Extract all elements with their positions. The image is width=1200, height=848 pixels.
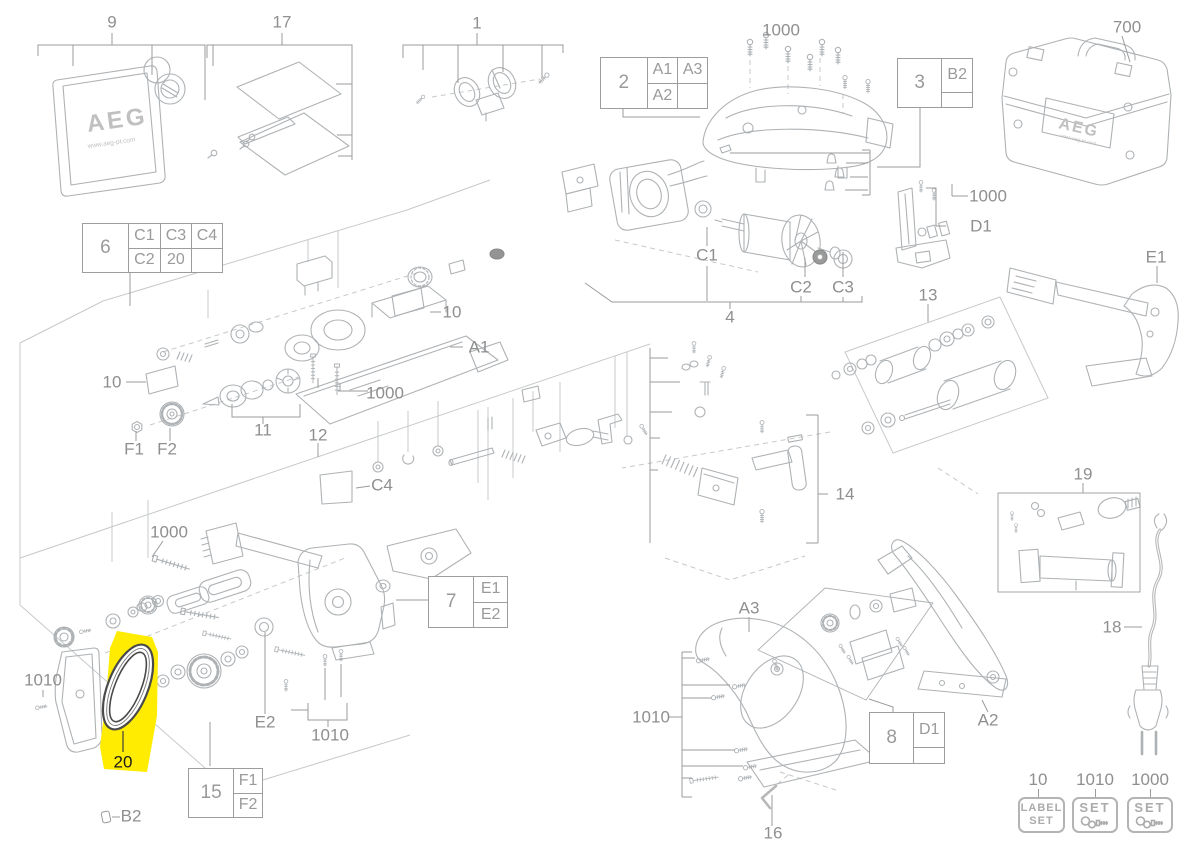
switch-plate-d1-group (896, 181, 950, 268)
part-label-1000-d1[interactable]: 1000 (969, 188, 1007, 205)
part-label-f1[interactable]: F1 (124, 441, 144, 458)
ref-cell-A3: A3 (677, 58, 707, 83)
spindle-group (203, 369, 300, 407)
badge-tick (1095, 789, 1096, 797)
belt-cover-7-group (298, 544, 395, 660)
ref-cell-A1: A1 (648, 58, 678, 83)
switch-parts-group (415, 63, 550, 121)
ref-cell-C3: C3 (160, 224, 191, 248)
hex-key-16 (762, 786, 776, 808)
badge-1000[interactable]: SET (1127, 797, 1173, 833)
highlighted-belt-20[interactable] (93, 631, 164, 772)
part-label-19[interactable]: 19 (1074, 466, 1093, 483)
ref-table-3[interactable]: 3B2 (897, 58, 973, 108)
part-label-b2-bottom[interactable]: B2 (121, 808, 142, 825)
exploded-parts-diagram: AEG www.aeg-pt.com (0, 0, 1200, 848)
ref-cell-C4: C4 (191, 224, 222, 248)
part-label-1000-top[interactable]: 1000 (762, 22, 800, 39)
part-label-c1[interactable]: C1 (696, 247, 718, 264)
ref-cell-B2: B2 (942, 59, 972, 92)
badge-text: LABEL (1021, 802, 1063, 815)
part-label-e1[interactable]: E1 (1146, 249, 1167, 266)
part-label-1010-handle[interactable]: 1010 (632, 709, 670, 726)
aeg-logo-box: AEG (85, 103, 149, 138)
ref-table-7-main: 7 (429, 577, 474, 627)
ref-table-2-main: 2 (601, 58, 648, 108)
gear-housing-a1-group (146, 249, 508, 424)
ref-table-6-main: 6 (83, 224, 129, 272)
ref-table-15[interactable]: 15F1F2 (188, 768, 263, 818)
badge-number-1010: 1010 (1076, 770, 1114, 790)
ref-table-8-cells: D1 (914, 713, 944, 763)
armature-group (715, 213, 852, 270)
sheet-screws (208, 134, 255, 158)
ref-table-2[interactable]: 2A1A3A2 (600, 57, 708, 109)
ref-cell-empty (677, 83, 707, 109)
ref-table-3-cells: B2 (942, 59, 972, 107)
ref-table-2-cells: A1A3A2 (648, 58, 707, 108)
accessory-box-group: AEG www.aeg-pt.com (53, 57, 185, 196)
ref-cell-D1: D1 (914, 713, 944, 747)
part-label-10-a1[interactable]: 10 (443, 304, 462, 321)
switch-internals-8-group (758, 588, 933, 700)
ref-cell-F1: F1 (234, 769, 262, 793)
handle-screws-1010-group (690, 657, 757, 784)
ref-table-7[interactable]: 7E1E2 (428, 576, 508, 628)
badge-10[interactable]: LABELSET (1018, 797, 1065, 833)
part-label-e2[interactable]: E2 (255, 714, 276, 731)
ref-table-6-cells: C1C3C4C220 (129, 224, 222, 272)
power-cord-18-group (1128, 514, 1168, 754)
badge-1010[interactable]: SET (1072, 797, 1118, 833)
part-label-1000-a1[interactable]: 1000 (366, 385, 404, 402)
badge-text: SET (1134, 801, 1165, 816)
ref-cell-empty (914, 747, 944, 764)
badge-text: SET (1029, 815, 1053, 828)
part-label-20[interactable]: 20 (114, 754, 133, 771)
part-label-a2[interactable]: A2 (978, 712, 999, 729)
ref-cell-C2: C2 (129, 248, 160, 273)
badge-number-1000: 1000 (1131, 770, 1169, 790)
ref-table-8-main: 8 (870, 713, 914, 763)
part-label-1000-belt[interactable]: 1000 (150, 524, 188, 541)
part-label-16[interactable]: 16 (764, 825, 783, 842)
part-label-4[interactable]: 4 (725, 309, 734, 326)
motor-housing-group (703, 32, 893, 190)
part-label-700[interactable]: 700 (1113, 19, 1141, 36)
set-icon (1080, 816, 1110, 829)
part-label-13[interactable]: 13 (919, 287, 938, 304)
ref-cell-20: 20 (160, 248, 191, 273)
part-label-11[interactable]: 11 (254, 422, 272, 439)
part-label-c4[interactable]: C4 (371, 477, 393, 494)
part-label-a3[interactable]: A3 (739, 600, 760, 617)
ref-cell-C1: C1 (129, 224, 160, 248)
sanding-sheets-group (208, 62, 349, 175)
part-label-a1[interactable]: A1 (469, 339, 490, 356)
part-label-f2[interactable]: F2 (157, 441, 177, 458)
ref-table-8[interactable]: 8D1 (869, 712, 945, 764)
badge-tick (1038, 789, 1039, 797)
part-label-1010-knob[interactable]: 1010 (24, 672, 62, 689)
ref-cell-A2: A2 (648, 83, 678, 109)
sander-frame-group (137, 523, 471, 658)
stator-group (562, 158, 711, 232)
badge-tick (1150, 789, 1151, 797)
part-label-1010-base[interactable]: 1010 (311, 727, 349, 744)
bearing-set-13-group (832, 316, 1020, 434)
ref-table-6[interactable]: 6C1C3C4C220 (82, 223, 223, 273)
pulley-f2-nut-f1-group (132, 402, 184, 433)
part-label-c2[interactable]: C2 (790, 279, 812, 296)
ref-cell-F2: F2 (234, 793, 262, 818)
housing-clips (720, 145, 844, 190)
leader-lines (38, 33, 1157, 826)
ref-cell-E1: E1 (474, 577, 507, 602)
set-icon (1135, 816, 1165, 829)
part-label-9[interactable]: 9 (107, 14, 116, 31)
rear-cover-e1-group (1007, 268, 1178, 386)
part-label-c3[interactable]: C3 (832, 279, 854, 296)
aeg-url-box: www.aeg-pt.com (86, 136, 136, 150)
part-label-10-left[interactable]: 10 (103, 374, 122, 391)
part-label-d1[interactable]: D1 (970, 218, 992, 235)
housing-screws (747, 32, 870, 93)
ref-cell-empty (191, 248, 222, 273)
handle-a2-group (878, 540, 1008, 697)
carrying-case-group: AEG www.aeg-pt.com (1002, 38, 1171, 185)
part-label-14[interactable]: 14 (836, 486, 855, 503)
part-label-12[interactable]: 12 (309, 427, 328, 444)
part-label-18[interactable]: 18 (1103, 619, 1122, 636)
ref-table-7-cells: E1E2 (474, 577, 507, 627)
ref-table-15-main: 15 (189, 769, 234, 817)
ref-cell-E2: E2 (474, 602, 507, 628)
ref-table-15-cells: F1F2 (234, 769, 262, 817)
ref-cell-empty (942, 92, 972, 108)
lever-parts-group (373, 386, 648, 472)
ref-table-3-main: 3 (898, 59, 942, 107)
diagram-art: AEG www.aeg-pt.com (0, 0, 1200, 848)
badge-text: SET (1079, 801, 1110, 816)
part-label-17[interactable]: 17 (273, 14, 292, 31)
service-kit-19-group (1011, 495, 1140, 590)
part-label-1[interactable]: 1 (472, 15, 481, 32)
badge-number-10: 10 (1029, 770, 1048, 790)
